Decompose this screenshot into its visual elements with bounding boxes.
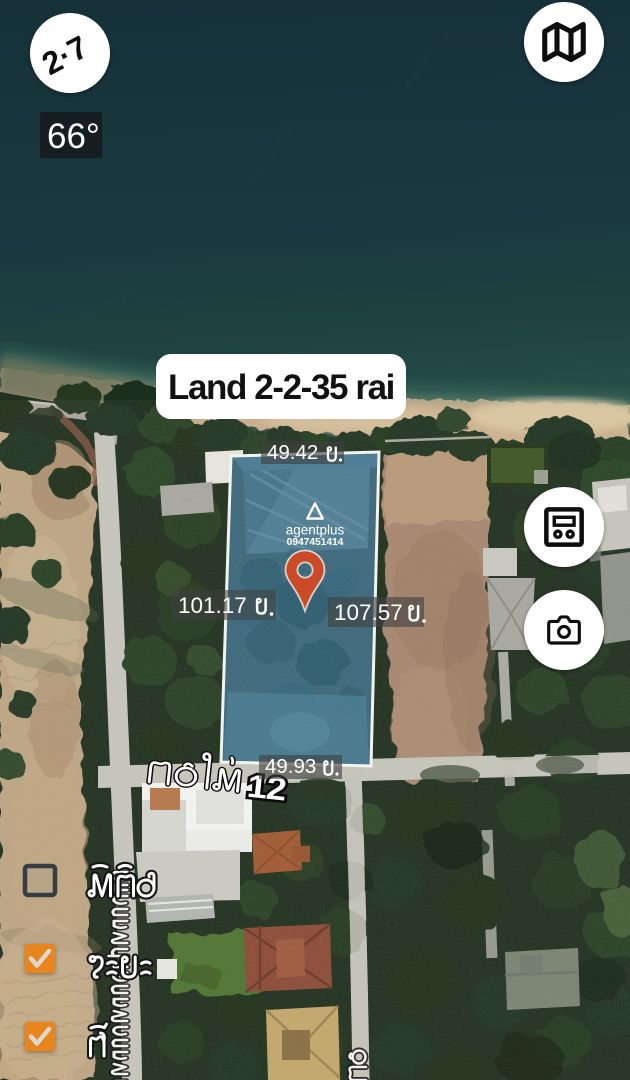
svg-text:66°: 66° — [47, 117, 100, 156]
svg-text:Land 2-2-35 rai: Land 2-2-35 rai — [168, 368, 394, 407]
svg-text:101.17: 101.17 — [178, 593, 247, 618]
svg-text:0947451414: 0947451414 — [287, 537, 344, 548]
svg-text:49.93: 49.93 — [265, 755, 316, 778]
svg-text:107.57: 107.57 — [334, 600, 403, 625]
svg-text:agentplus: agentplus — [286, 523, 345, 538]
svg-text:49.42: 49.42 — [267, 441, 318, 464]
